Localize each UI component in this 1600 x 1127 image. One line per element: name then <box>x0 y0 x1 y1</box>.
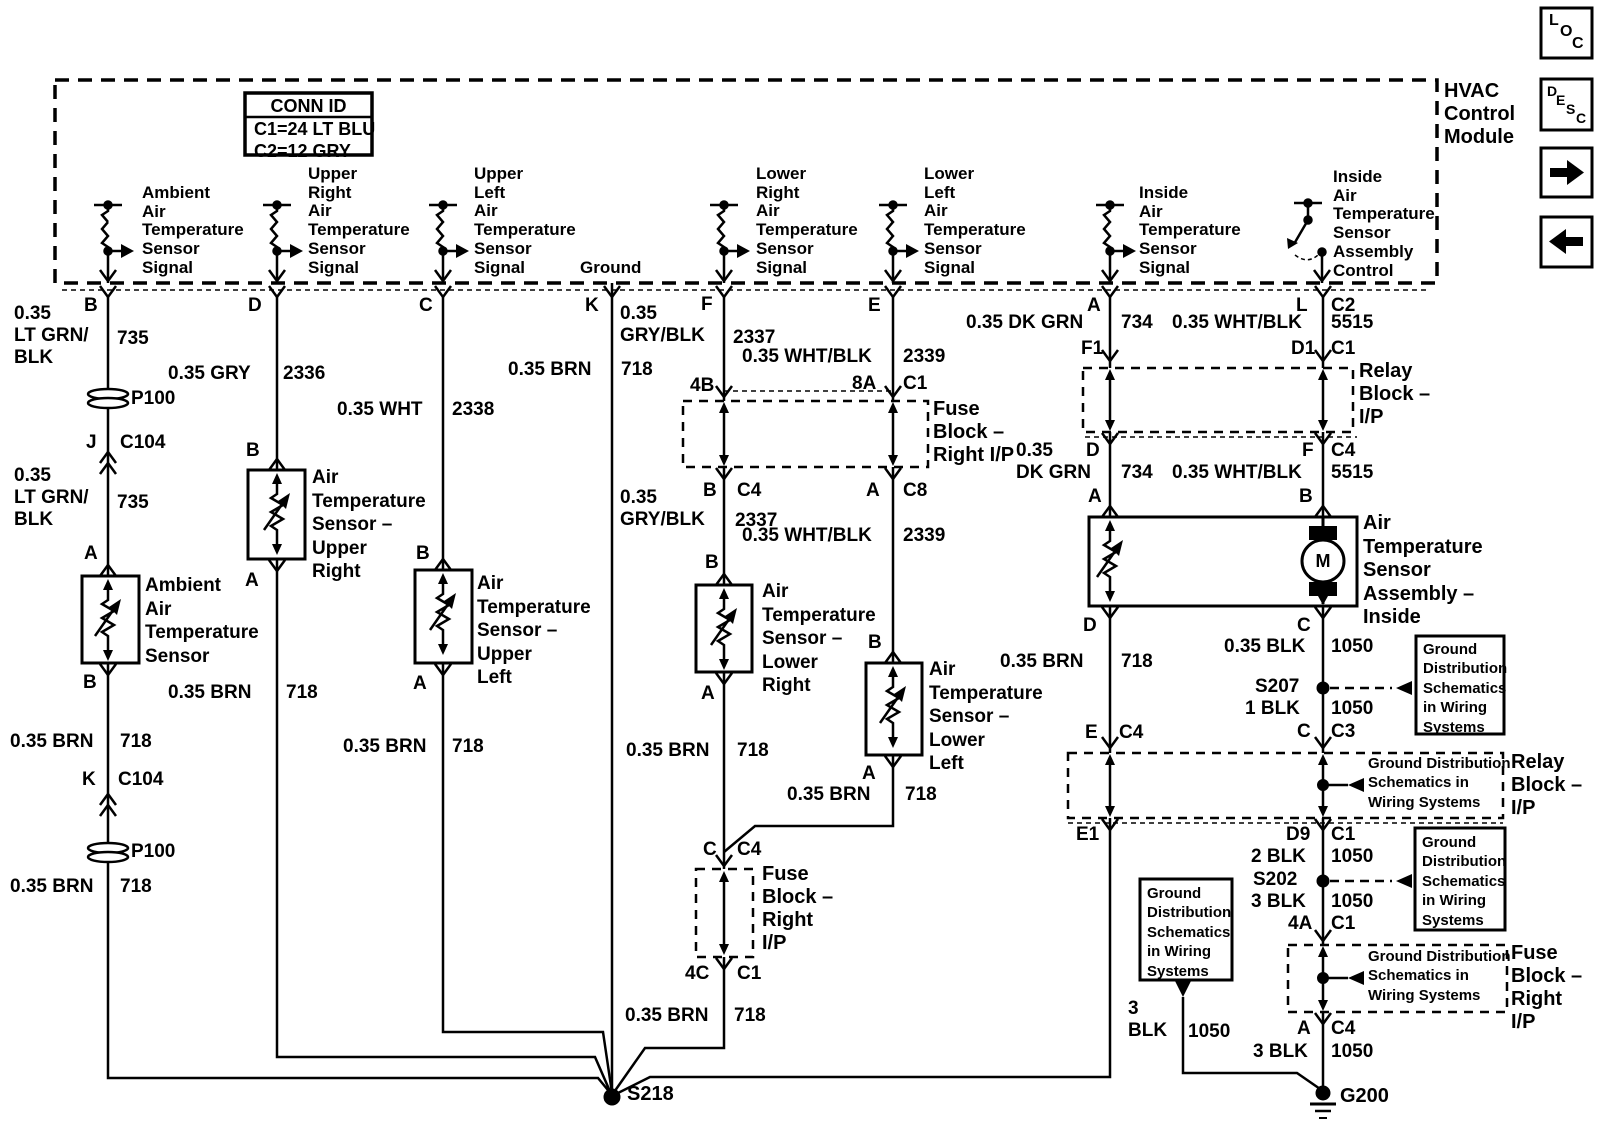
desc-letter-s: S <box>1566 102 1575 116</box>
ground-g200: G200 <box>1340 1085 1389 1108</box>
lower-left-sensor-name: Air Temperature Sensor – Lower Left <box>929 658 1043 776</box>
conn-c4: C4 <box>737 839 761 861</box>
conn-c4: C4 <box>1331 440 1355 462</box>
wire-label: 0.35 BRN <box>787 784 870 806</box>
pin-e: E <box>1085 722 1098 744</box>
wire-number: 1050 <box>1331 846 1373 868</box>
wire-label: 0.35 BRN <box>168 682 251 704</box>
wire-label: 0.35 BLK <box>1224 636 1305 658</box>
pin-b: B <box>1299 486 1313 508</box>
relay-block-2-label: Relay Block – I/P <box>1511 751 1582 820</box>
wire-label: 0.35 BRN <box>1000 651 1083 673</box>
relay-pin-f1: F1 <box>1081 338 1103 360</box>
wire-number: 1050 <box>1331 891 1373 913</box>
loc-letter-c: C <box>1572 36 1584 52</box>
relay-pin-d9: D9 <box>1286 824 1310 846</box>
ground-ref-text-relay2: Ground Distribution Schematics in Wiring… <box>1368 754 1510 812</box>
fuse-block-3-label: Fuse Block – Right I/P <box>1511 942 1582 1034</box>
wire-label: 0.35 GRY/BLK <box>620 303 705 347</box>
loc-letter-l: L <box>1549 13 1559 29</box>
lower-left-signal-label: Lower Left Air Temperature Sensor Signal <box>924 165 1026 277</box>
wire-label: 0.35 BRN <box>625 1005 708 1027</box>
wire-number: 718 <box>734 1005 766 1027</box>
ground-label: Ground <box>580 259 641 278</box>
pin-b: B <box>703 480 717 502</box>
lower-right-sensor-name: Air Temperature Sensor – Lower Right <box>762 580 876 698</box>
wire-number: 2336 <box>283 363 325 385</box>
wire-number: 718 <box>120 876 152 898</box>
pin-k: K <box>585 295 599 317</box>
pin-c: C <box>703 839 717 861</box>
conn-c8: C8 <box>903 480 927 502</box>
wire-label: 0.35 BRN <box>508 359 591 381</box>
wire-number: 2338 <box>452 399 494 421</box>
pin-b: B <box>83 672 97 694</box>
ground-ref-text-fuse3: Ground Distribution Schematics in Wiring… <box>1368 947 1510 1005</box>
conn-c1: C1 <box>1331 338 1355 360</box>
relay-pin-e1: E1 <box>1076 824 1099 846</box>
inside-signal-label: Inside Air Temperature Sensor Signal <box>1139 184 1241 278</box>
wire-label: 3 BLK <box>1251 891 1306 913</box>
wire-label: 0.35 GRY/BLK <box>620 487 705 531</box>
pin-a: A <box>866 480 880 502</box>
wire-label: 0.35 LT GRN/ BLK <box>14 465 89 531</box>
fuse-pin-4b: 4B <box>690 375 714 397</box>
conn-c1: C1 <box>903 373 927 395</box>
fuse-block-1-label: Fuse Block – Right I/P <box>933 398 1014 467</box>
wire-label: 3 BLK <box>1128 998 1167 1042</box>
pin-c: C <box>419 295 433 317</box>
pin-d: D <box>1083 615 1097 637</box>
relay-block-1 <box>1083 368 1353 432</box>
relay-pin-d: D <box>1086 440 1100 462</box>
wire-number: 718 <box>452 736 484 758</box>
pin-a: A <box>84 543 98 565</box>
conn-c104: C104 <box>120 432 165 454</box>
wire-number: 2339 <box>903 525 945 547</box>
wire-number: 735 <box>117 492 149 514</box>
p100-label: P100 <box>131 388 175 410</box>
wire-number: 718 <box>737 740 769 762</box>
wire-label: 0.35 LT GRN/ BLK <box>14 303 89 369</box>
pin-a: A <box>1297 1018 1311 1040</box>
hvac-module-label: HVAC Control Module <box>1444 80 1515 149</box>
wiring-diagram-page: CONN ID C1=24 LT BLU C2=12 GRY HVAC Cont… <box>0 0 1600 1127</box>
upper-left-signal-label: Upper Left Air Temperature Sensor Signal <box>474 165 576 277</box>
desc-letter-e: E <box>1556 93 1565 107</box>
wire-label: 3 BLK <box>1253 1041 1308 1063</box>
motor-m-label: M <box>1313 551 1333 571</box>
ground-ref-text-3: Ground Distribution Schematics in Wiring… <box>1147 884 1231 981</box>
fuse-pin-8a: 8A <box>852 373 876 395</box>
assembly-inside-name: Air Temperature Sensor Assembly – Inside <box>1363 512 1483 630</box>
ground-ref-text-1: Ground Distribution Schematics in Wiring… <box>1423 640 1507 737</box>
conn-c4: C4 <box>1331 1018 1355 1040</box>
fuse-pin-4c: 4C <box>685 963 709 985</box>
splice-s218: S218 <box>627 1083 674 1106</box>
splice-s207: S207 <box>1255 676 1299 698</box>
pin-b: B <box>705 552 719 574</box>
upper-right-sensor-name: Air Temperature Sensor – Upper Right <box>312 466 426 584</box>
relay-pin-d1: D1 <box>1291 338 1315 360</box>
desc-letter-c: C <box>1576 111 1586 125</box>
wire-label: 0.35 WHT/BLK <box>742 525 872 547</box>
assembly-control-label: Inside Air Temperature Sensor Assembly C… <box>1333 168 1435 280</box>
lower-right-signal-label: Lower Right Air Temperature Sensor Signa… <box>756 165 858 277</box>
conn-c3: C3 <box>1331 721 1355 743</box>
p100-label: P100 <box>131 841 175 863</box>
pin-d: D <box>248 295 262 317</box>
wire-label: 0.35 GRY <box>168 363 251 385</box>
relay-block-1-label: Relay Block – I/P <box>1359 360 1430 429</box>
pin-a: A <box>1088 486 1102 508</box>
ambient-signal-label: Ambient Air Temperature Sensor Signal <box>142 184 244 278</box>
ambient-sensor-name: Ambient Air Temperature Sensor <box>145 574 259 668</box>
upper-left-sensor-name: Air Temperature Sensor – Upper Left <box>477 572 591 690</box>
pin-b: B <box>416 543 430 565</box>
wire-number: 735 <box>117 328 149 350</box>
fuse-block-2-label: Fuse Block – Right I/P <box>762 863 833 955</box>
pin-e: E <box>868 295 881 317</box>
pin-k: K <box>82 769 96 791</box>
wire-label: 0.35 BRN <box>10 876 93 898</box>
pin-a: A <box>245 570 259 592</box>
wire-number: 718 <box>905 784 937 806</box>
wire-number: 734 <box>1121 462 1153 484</box>
pin-c: C <box>1297 615 1311 637</box>
wire-number: 718 <box>120 731 152 753</box>
pin-a: A <box>701 683 715 705</box>
pin-c: C <box>1297 721 1311 743</box>
conn-id-title: CONN ID <box>245 96 372 116</box>
wire-label: 0.35 WHT/BLK <box>1172 312 1302 334</box>
wire-number: 5515 <box>1331 462 1373 484</box>
wire-number: 2339 <box>903 346 945 368</box>
wire-number: 5515 <box>1331 312 1373 334</box>
wire-number: 1050 <box>1188 1021 1230 1043</box>
pin-j: J <box>86 432 97 454</box>
wire-label: 2 BLK <box>1251 846 1306 868</box>
conn-c104: C104 <box>118 769 163 791</box>
wire-label: 0.35 BRN <box>10 731 93 753</box>
wire-number: 718 <box>1121 651 1153 673</box>
wire-label: 0.35 BRN <box>626 740 709 762</box>
wire-number: 718 <box>286 682 318 704</box>
wire-label: 0.35 WHT <box>337 399 423 421</box>
wire-label: 0.35 DK GRN <box>1016 440 1091 484</box>
wire-label: 0.35 BRN <box>343 736 426 758</box>
splice-s202: S202 <box>1253 869 1297 891</box>
pin-a: A <box>413 673 427 695</box>
pin-b: B <box>246 440 260 462</box>
fuse-pin-4a: 4A <box>1288 913 1312 935</box>
conn-c1: C1 <box>737 963 761 985</box>
conn-c4: C4 <box>737 480 761 502</box>
conn-id-c1: C1=24 LT BLU <box>254 119 375 139</box>
wire-number: 1050 <box>1331 698 1373 720</box>
wire-number: 718 <box>621 359 653 381</box>
ground-ref-text-2: Ground Distribution Schematics in Wiring… <box>1422 833 1506 930</box>
upper-right-signal-label: Upper Right Air Temperature Sensor Signa… <box>308 165 410 277</box>
conn-c1: C1 <box>1331 824 1355 846</box>
wire-number: 734 <box>1121 312 1153 334</box>
assembly-control-switch-symbol <box>1287 200 1326 284</box>
wire-label: 0.35 DK GRN <box>966 312 1083 334</box>
loc-letter-o: O <box>1560 24 1572 40</box>
conn-c4: C4 <box>1119 722 1143 744</box>
nav-arrow-glyphs <box>1549 160 1584 254</box>
pin-b: B <box>868 632 882 654</box>
wire-label: 0.35 WHT/BLK <box>742 346 872 368</box>
wire-label: 1 BLK <box>1245 698 1300 720</box>
wire-number: 1050 <box>1331 636 1373 658</box>
pin-a: A <box>1087 295 1101 317</box>
wire-number: 1050 <box>1331 1041 1373 1063</box>
pin-a: A <box>862 763 876 785</box>
wire-label: 0.35 WHT/BLK <box>1172 462 1302 484</box>
conn-id-c2: C2=12 GRY <box>254 141 351 161</box>
relay-pin-f: F <box>1302 440 1314 462</box>
conn-c1: C1 <box>1331 913 1355 935</box>
